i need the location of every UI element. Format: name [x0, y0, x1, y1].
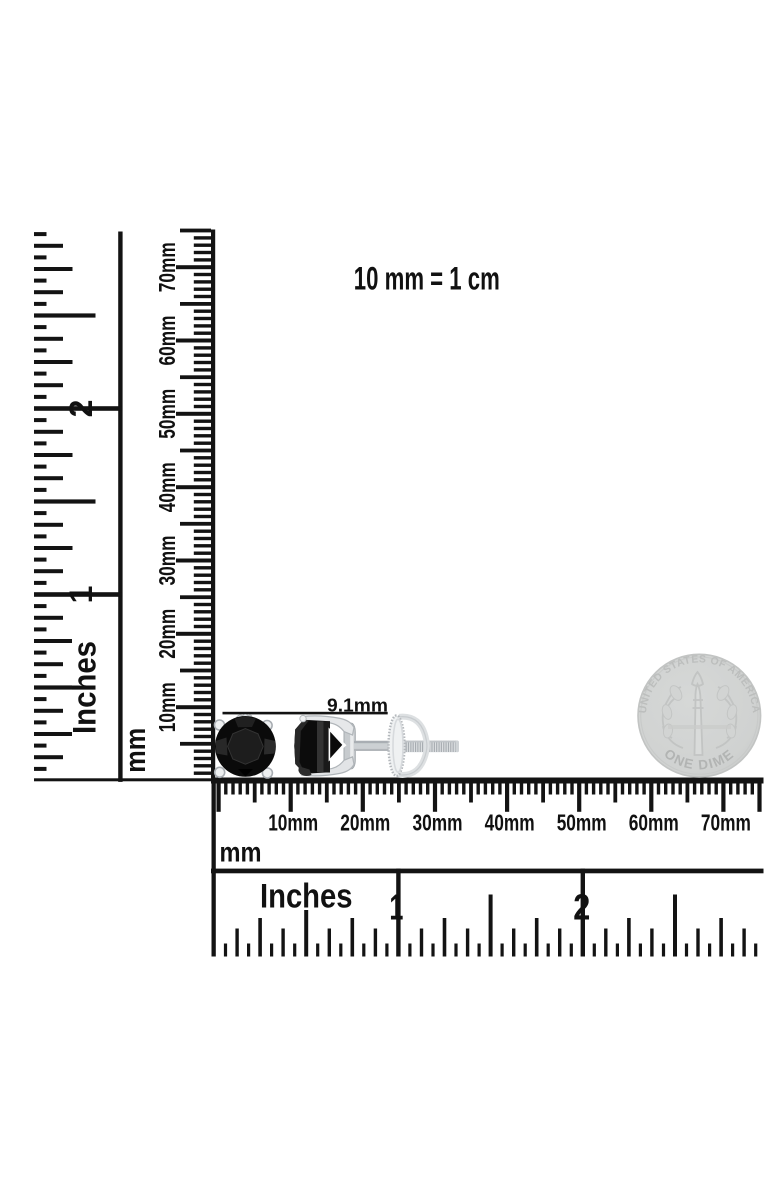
svg-text:1: 1	[389, 887, 403, 928]
svg-text:60mm: 60mm	[154, 316, 180, 366]
svg-text:20mm: 20mm	[340, 810, 390, 836]
svg-text:20mm: 20mm	[154, 609, 180, 659]
svg-text:70mm: 70mm	[701, 810, 751, 836]
svg-text:50mm: 50mm	[557, 810, 607, 836]
svg-text:1: 1	[63, 586, 99, 604]
svg-text:10mm: 10mm	[154, 682, 180, 732]
svg-text:mm: mm	[120, 728, 152, 773]
svg-text:30mm: 30mm	[154, 536, 180, 586]
svg-text:30mm: 30mm	[413, 810, 463, 836]
svg-text:2: 2	[573, 887, 590, 928]
svg-text:9.1mm: 9.1mm	[327, 696, 388, 716]
svg-text:Inches: Inches	[67, 641, 103, 734]
svg-text:50mm: 50mm	[154, 389, 180, 439]
svg-text:mm: mm	[220, 837, 262, 868]
svg-text:40mm: 40mm	[485, 810, 535, 836]
svg-text:10 mm = 1 cm: 10 mm = 1 cm	[354, 260, 500, 296]
svg-text:60mm: 60mm	[629, 810, 679, 836]
svg-text:Inches: Inches	[260, 878, 353, 916]
svg-text:10mm: 10mm	[268, 810, 318, 836]
svg-text:40mm: 40mm	[154, 462, 180, 512]
svg-text:70mm: 70mm	[154, 242, 180, 292]
svg-text:2: 2	[63, 400, 99, 418]
